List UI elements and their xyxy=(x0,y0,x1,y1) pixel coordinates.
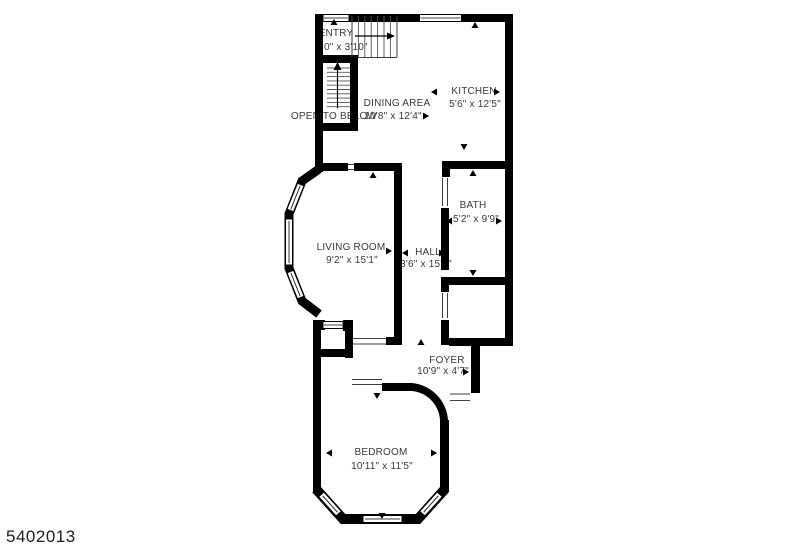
dimension-arrow-icon xyxy=(472,22,479,28)
room-dims-entry: 0" x 3'10" xyxy=(324,42,368,54)
room-name-dining: DINING AREA xyxy=(364,98,431,110)
room-name-entry: ENTRY xyxy=(319,28,354,40)
window xyxy=(287,183,304,212)
room-name-living: LIVING ROOM xyxy=(317,242,386,254)
bay-window-living xyxy=(286,169,320,314)
dimension-arrow-icon xyxy=(379,513,386,519)
curved-corner-wall xyxy=(412,383,448,420)
room-name-hall: HALL xyxy=(415,247,441,259)
dimension-arrow-icon xyxy=(402,250,408,257)
room-dims-bedroom: 10'11" x 11'5" xyxy=(351,461,413,473)
stair-direction-arrow-icon xyxy=(387,33,395,40)
dimension-arrow-icon xyxy=(423,113,429,120)
dimension-arrow-icon xyxy=(461,144,468,150)
listing-id-watermark: 5402013 xyxy=(6,527,76,547)
staircase-lower xyxy=(327,62,350,108)
floor-plan: ENTRY 0" x 3'10" KITCHEN 5'6" x 12'5" DI… xyxy=(0,0,800,552)
window xyxy=(287,270,304,299)
windows-straight xyxy=(323,15,462,329)
window xyxy=(420,492,443,516)
dimension-arrow-icon xyxy=(374,393,381,399)
room-dims-living: 9'2" x 15'1" xyxy=(326,255,378,267)
room-dims-bath: 5'2" x 9'9" xyxy=(453,214,499,226)
window xyxy=(319,492,342,516)
room-dims-hall: 3'6" x 15'1" xyxy=(400,259,452,271)
dimension-arrow-icon xyxy=(446,218,452,225)
dimension-arrow-icon xyxy=(470,270,477,276)
window xyxy=(323,322,343,329)
window xyxy=(323,15,349,22)
room-dims-foyer: 10'9" x 4'7" xyxy=(417,366,469,378)
label-open-to-below: OPEN TO BELOW xyxy=(291,111,377,123)
dimension-arrow-icon xyxy=(431,89,437,96)
stair-direction-arrow-icon xyxy=(334,62,342,70)
dimension-arrow-icon xyxy=(326,450,332,457)
dimension-arrow-icon xyxy=(370,172,377,178)
window xyxy=(286,219,293,265)
window xyxy=(420,15,462,22)
window xyxy=(363,516,402,523)
dimension-arrow-icon xyxy=(470,170,477,176)
dimension-arrow-icon xyxy=(386,248,392,255)
bay-window-bedroom xyxy=(316,489,445,523)
dimension-arrow-icon xyxy=(431,450,437,457)
dimension-arrow-icon xyxy=(331,19,338,25)
room-dims-kitchen: 5'6" x 12'5" xyxy=(449,99,501,111)
dimension-arrow-icon xyxy=(418,339,425,345)
room-name-kitchen: KITCHEN xyxy=(451,86,496,98)
room-name-bath: BATH xyxy=(460,200,487,212)
room-name-bedroom: BEDROOM xyxy=(354,447,407,459)
